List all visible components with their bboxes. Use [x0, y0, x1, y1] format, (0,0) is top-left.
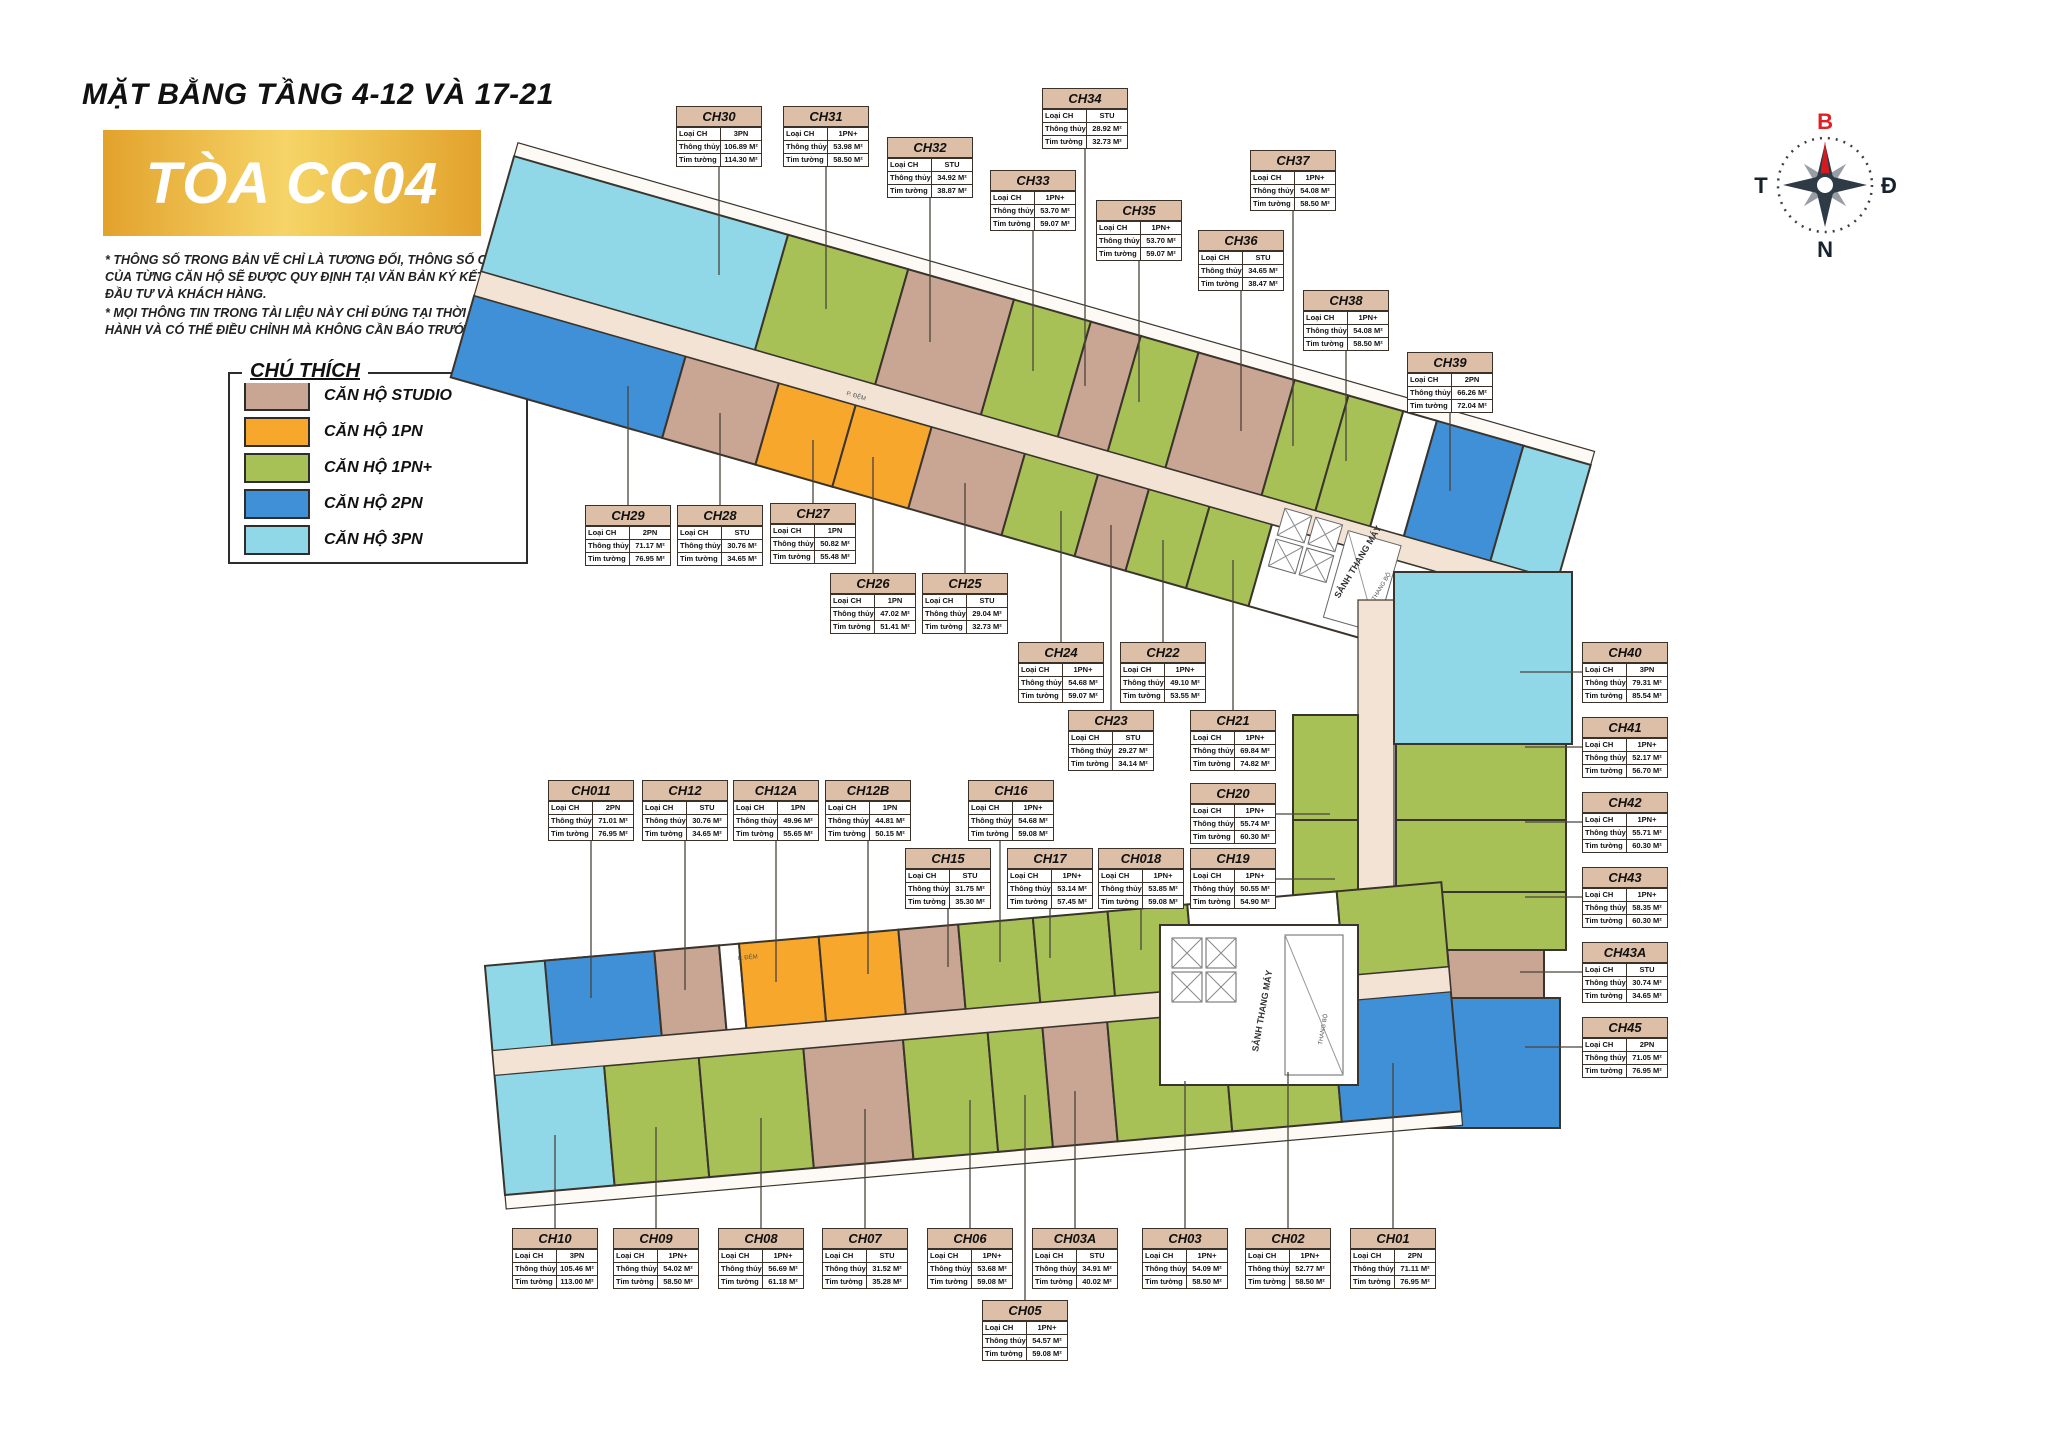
field-label: Thông thủy [1191, 745, 1235, 757]
unit-net-area-row: Thông thủy50.55 M² [1191, 882, 1275, 895]
unit-net-area: 79.31 M² [1627, 677, 1667, 689]
unit-gross-area-row: Tim tường34.65 M² [678, 552, 762, 565]
unit-type-row: Loại CHSTU [643, 801, 727, 814]
unit-gross-area-row: Tim tường32.73 M² [923, 620, 1007, 633]
unit-net-area-row: Thông thủy34.92 M² [888, 171, 972, 184]
unit-net-area: 49.10 M² [1165, 677, 1205, 689]
unit-gross-area: 35.28 M² [867, 1276, 907, 1288]
field-label: Tim tường [614, 1276, 658, 1288]
unit-id: CH37 [1251, 151, 1335, 171]
unit-net-area: 30.76 M² [687, 815, 727, 827]
field-label: Tim tường [1191, 758, 1235, 770]
unit-type: 1PN+ [1235, 870, 1275, 882]
field-label: Loại CH [991, 192, 1035, 204]
unit-id: CH03A [1033, 1229, 1117, 1249]
unit-id: CH20 [1191, 784, 1275, 804]
unit-type: STU [687, 802, 727, 814]
unit-net-area: 58.35 M² [1627, 902, 1667, 914]
unit-gross-area-row: Tim tường59.07 M² [991, 217, 1075, 230]
field-label: Thông thủy [771, 538, 815, 550]
unit-id: CH17 [1008, 849, 1092, 869]
unit-gross-area-row: Tim tường60.30 M² [1191, 830, 1275, 843]
unit-gross-area: 113.00 M² [557, 1276, 597, 1288]
unit-label-CH24: CH24Loại CH1PN+Thông thủy54.68 M²Tim tườ… [1018, 642, 1104, 703]
unit-id: CH10 [513, 1229, 597, 1249]
field-label: Thông thủy [1097, 235, 1141, 247]
unit-label-CH33: CH33Loại CH1PN+Thông thủy53.70 M²Tim tườ… [990, 170, 1076, 231]
unit-type: 1PN+ [1627, 889, 1667, 901]
floorplan-page: MẶT BẰNG TẦNG 4-12 VÀ 17-21 TÒA CC04 * T… [0, 0, 2048, 1448]
unit-label-CH23: CH23Loại CHSTUThông thủy29.27 M²Tim tườn… [1068, 710, 1154, 771]
unit-gross-area-row: Tim tường38.47 M² [1199, 277, 1283, 290]
unit-gross-area: 59.07 M² [1063, 690, 1103, 702]
unit-id: CH25 [923, 574, 1007, 594]
unit-gross-area: 76.95 M² [1395, 1276, 1435, 1288]
field-label: Thông thủy [1099, 883, 1143, 895]
unit-net-area: 71.17 M² [630, 540, 670, 552]
unit-gross-area-row: Tim tường32.73 M² [1043, 135, 1127, 148]
unit-net-area-row: Thông thủy79.31 M² [1583, 676, 1667, 689]
field-label: Tim tường [1191, 896, 1235, 908]
unit-label-CH28: CH28Loại CHSTUThông thủy30.76 M²Tim tườn… [677, 505, 763, 566]
unit-gross-area: 74.82 M² [1235, 758, 1275, 770]
unit-gross-area: 59.08 M² [972, 1276, 1012, 1288]
unit-type: 1PN+ [1165, 664, 1205, 676]
unit-net-area-row: Thông thủy69.84 M² [1191, 744, 1275, 757]
field-label: Tim tường [734, 828, 778, 840]
unit-net-area: 49.96 M² [778, 815, 818, 827]
unit-id: CH42 [1583, 793, 1667, 813]
unit-label-CH16: CH16Loại CH1PN+Thông thủy54.68 M²Tim tườ… [968, 780, 1054, 841]
unit-net-area: 29.04 M² [967, 608, 1007, 620]
unit-net-area: 54.02 M² [658, 1263, 698, 1275]
unit-net-area-row: Thông thủy71.17 M² [586, 539, 670, 552]
unit-label-CH05: CH05Loại CH1PN+Thông thủy54.57 M²Tim tườ… [982, 1300, 1068, 1361]
unit-type-row: Loại CH1PN+ [784, 127, 868, 140]
unit-net-area-row: Thông thủy30.76 M² [643, 814, 727, 827]
unit-type: 3PN [721, 128, 761, 140]
unit-id: CH19 [1191, 849, 1275, 869]
unit-type: 1PN [815, 525, 855, 537]
unit-gross-area: 54.90 M² [1235, 896, 1275, 908]
field-label: Tim tường [1583, 1065, 1627, 1077]
unit-label-CH40: CH40Loại CH3PNThông thủy79.31 M²Tim tườn… [1582, 642, 1668, 703]
unit-type-row: Loại CHSTU [906, 869, 990, 882]
field-label: Tim tường [1246, 1276, 1290, 1288]
field-label: Tim tường [969, 828, 1013, 840]
unit-net-area-row: Thông thủy29.04 M² [923, 607, 1007, 620]
unit-net-area: 71.11 M² [1395, 1263, 1435, 1275]
unit-gross-area-row: Tim tường59.08 M² [969, 827, 1053, 840]
unit-type-row: Loại CH1PN+ [1143, 1249, 1227, 1262]
unit-label-CH36: CH36Loại CHSTUThông thủy34.65 M²Tim tườn… [1198, 230, 1284, 291]
field-label: Loại CH [888, 159, 932, 171]
unit-type: STU [967, 595, 1007, 607]
field-label: Loại CH [1408, 374, 1452, 386]
unit-label-CH10: CH10Loại CH3PNThông thủy105.46 M²Tim tườ… [512, 1228, 598, 1289]
unit-gross-area: 85.54 M² [1627, 690, 1667, 702]
unit-type-row: Loại CHSTU [888, 158, 972, 171]
field-label: Tim tường [1008, 896, 1052, 908]
unit-type: 1PN+ [1143, 870, 1183, 882]
unit-type: 1PN+ [1627, 739, 1667, 751]
unit-gross-area-row: Tim tường59.07 M² [1097, 247, 1181, 260]
field-label: Thông thủy [719, 1263, 763, 1275]
unit-net-area: 30.76 M² [722, 540, 762, 552]
field-label: Thông thủy [1043, 123, 1087, 135]
unit-gross-area-row: Tim tường76.95 M² [586, 552, 670, 565]
field-label: Loại CH [771, 525, 815, 537]
unit-net-area-row: Thông thủy49.10 M² [1121, 676, 1205, 689]
unit-net-area-row: Thông thủy53.14 M² [1008, 882, 1092, 895]
unit-gross-area-row: Tim tường58.50 M² [784, 153, 868, 166]
unit-gross-area-row: Tim tường72.04 M² [1408, 399, 1492, 412]
unit-type: 1PN+ [1027, 1322, 1067, 1334]
unit-net-area-row: Thông thủy53.98 M² [784, 140, 868, 153]
field-label: Loại CH [1097, 222, 1141, 234]
unit-type: STU [867, 1250, 907, 1262]
field-label: Tim tường [1583, 765, 1627, 777]
field-label: Tim tường [1033, 1276, 1077, 1288]
field-label: Tim tường [1251, 198, 1295, 210]
unit-id: CH23 [1069, 711, 1153, 731]
unit-net-area-row: Thông thủy52.17 M² [1583, 751, 1667, 764]
unit-label-CH32: CH32Loại CHSTUThông thủy34.92 M²Tim tườn… [887, 137, 973, 198]
field-label: Thông thủy [1191, 883, 1235, 895]
field-label: Thông thủy [1583, 902, 1627, 914]
unit-label-CH08: CH08Loại CH1PN+Thông thủy56.69 M²Tim tườ… [718, 1228, 804, 1289]
unit-net-area: 29.27 M² [1113, 745, 1153, 757]
field-label: Tim tường [677, 154, 721, 166]
unit-id: CH21 [1191, 711, 1275, 731]
unit-net-area-row: Thông thủy53.70 M² [991, 204, 1075, 217]
field-label: Thông thủy [1199, 265, 1243, 277]
unit-net-area: 71.05 M² [1627, 1052, 1667, 1064]
field-label: Loại CH [923, 595, 967, 607]
unit-id: CH31 [784, 107, 868, 127]
unit-id: CH15 [906, 849, 990, 869]
unit-id: CH43 [1583, 868, 1667, 888]
field-label: Loại CH [928, 1250, 972, 1262]
unit-net-area: 28.92 M² [1087, 123, 1127, 135]
field-label: Loại CH [719, 1250, 763, 1262]
unit-net-area-row: Thông thủy31.52 M² [823, 1262, 907, 1275]
unit-label-CH41: CH41Loại CH1PN+Thông thủy52.17 M²Tim tườ… [1582, 717, 1668, 778]
field-label: Tim tường [586, 553, 630, 565]
unit-net-area-row: Thông thủy54.02 M² [614, 1262, 698, 1275]
field-label: Tim tường [1583, 690, 1627, 702]
unit-net-area: 106.89 M² [721, 141, 761, 153]
unit-net-area: 30.74 M² [1627, 977, 1667, 989]
unit-type: STU [932, 159, 972, 171]
unit-type: 1PN+ [763, 1250, 803, 1262]
unit-net-area-row: Thông thủy105.46 M² [513, 1262, 597, 1275]
unit-type: STU [1243, 252, 1283, 264]
field-label: Tim tường [991, 218, 1035, 230]
unit-net-area: 56.69 M² [763, 1263, 803, 1275]
unit-id: CH05 [983, 1301, 1067, 1321]
unit-type-row: Loại CH1PN+ [1121, 663, 1205, 676]
field-label: Thông thủy [677, 141, 721, 153]
unit-type-row: Loại CH1PN+ [1583, 888, 1667, 901]
unit-type-row: Loại CH1PN+ [719, 1249, 803, 1262]
unit-gross-area-row: Tim tường50.15 M² [826, 827, 910, 840]
unit-id: CH018 [1099, 849, 1183, 869]
unit-type-row: Loại CH1PN [826, 801, 910, 814]
unit-id: CH26 [831, 574, 915, 594]
unit-gross-area-row: Tim tường57.45 M² [1008, 895, 1092, 908]
unit-net-area-row: Thông thủy54.57 M² [983, 1334, 1067, 1347]
unit-label-CH45: CH45Loại CH2PNThông thủy71.05 M²Tim tườn… [1582, 1017, 1668, 1078]
unit-gross-area-row: Tim tường59.08 M² [928, 1275, 1012, 1288]
unit-type-row: Loại CH1PN+ [1008, 869, 1092, 882]
unit-type-row: Loại CH1PN+ [1099, 869, 1183, 882]
field-label: Thông thủy [643, 815, 687, 827]
unit-type-row: Loại CH2PN [549, 801, 633, 814]
field-label: Loại CH [1191, 870, 1235, 882]
field-label: Thông thủy [1408, 387, 1452, 399]
unit-label-CH29: CH29Loại CH2PNThông thủy71.17 M²Tim tườn… [585, 505, 671, 566]
unit-gross-area: 76.95 M² [593, 828, 633, 840]
unit-type: 2PN [593, 802, 633, 814]
field-label: Thông thủy [784, 141, 828, 153]
unit-type: 1PN+ [1295, 172, 1335, 184]
unit-type: STU [1113, 732, 1153, 744]
unit-net-area-row: Thông thủy34.65 M² [1199, 264, 1283, 277]
unit-net-area: 71.01 M² [593, 815, 633, 827]
unit-label-CH20: CH20Loại CH1PN+Thông thủy55.74 M²Tim tườ… [1190, 783, 1276, 844]
unit-gross-area: 34.65 M² [722, 553, 762, 565]
unit-gross-area-row: Tim tường34.14 M² [1069, 757, 1153, 770]
field-label: Loại CH [1583, 739, 1627, 751]
field-label: Loại CH [983, 1322, 1027, 1334]
unit-gross-area: 53.55 M² [1165, 690, 1205, 702]
field-label: Loại CH [643, 802, 687, 814]
unit-gross-area: 76.95 M² [1627, 1065, 1667, 1077]
field-label: Tim tường [678, 553, 722, 565]
unit-gross-area-row: Tim tường85.54 M² [1583, 689, 1667, 702]
unit-gross-area: 38.87 M² [932, 185, 972, 197]
unit-type: 1PN+ [1187, 1250, 1227, 1262]
unit-id: CH30 [677, 107, 761, 127]
unit-type-row: Loại CH1PN+ [614, 1249, 698, 1262]
unit-label-CH39: CH39Loại CH2PNThông thủy66.26 M²Tim tườn… [1407, 352, 1493, 413]
unit-label-CH07: CH07Loại CHSTUThông thủy31.52 M²Tim tườn… [822, 1228, 908, 1289]
field-label: Tim tường [923, 621, 967, 633]
unit-type-row: Loại CHSTU [1069, 731, 1153, 744]
field-label: Loại CH [1191, 732, 1235, 744]
unit-type: 2PN [630, 527, 670, 539]
field-label: Loại CH [1008, 870, 1052, 882]
unit-net-area: 55.74 M² [1235, 818, 1275, 830]
unit-gross-area: 59.07 M² [1035, 218, 1075, 230]
field-label: Tim tường [1583, 915, 1627, 927]
unit-gross-area-row: Tim tường59.08 M² [1099, 895, 1183, 908]
unit-type: 1PN+ [1348, 312, 1388, 324]
field-label: Loại CH [734, 802, 778, 814]
unit-type-row: Loại CH1PN+ [1251, 171, 1335, 184]
unit-id: CH29 [586, 506, 670, 526]
field-label: Tim tường [1019, 690, 1063, 702]
unit-net-area-row: Thông thủy71.05 M² [1583, 1051, 1667, 1064]
unit-gross-area-row: Tim tường59.08 M² [983, 1347, 1067, 1360]
unit-gross-area: 58.50 M² [1348, 338, 1388, 350]
unit-label-CH25: CH25Loại CHSTUThông thủy29.04 M²Tim tườn… [922, 573, 1008, 634]
unit-id: CH02 [1246, 1229, 1330, 1249]
field-label: Tim tường [643, 828, 687, 840]
field-label: Loại CH [1251, 172, 1295, 184]
unit-gross-area: 57.45 M² [1052, 896, 1092, 908]
field-label: Loại CH [1121, 664, 1165, 676]
field-label: Loại CH [1583, 664, 1627, 676]
unit-type-row: Loại CHSTU [823, 1249, 907, 1262]
field-label: Thông thủy [1121, 677, 1165, 689]
unit-gross-area: 32.73 M² [967, 621, 1007, 633]
unit-net-area-row: Thông thủy66.26 M² [1408, 386, 1492, 399]
unit-type: 1PN+ [1052, 870, 1092, 882]
unit-label-CH09: CH09Loại CH1PN+Thông thủy54.02 M²Tim tườ… [613, 1228, 699, 1289]
unit-label-CH43: CH43Loại CH1PN+Thông thủy58.35 M²Tim tườ… [1582, 867, 1668, 928]
unit-gross-area-row: Tim tường58.50 M² [1246, 1275, 1330, 1288]
unit-type-row: Loại CH1PN+ [991, 191, 1075, 204]
unit-net-area: 53.85 M² [1143, 883, 1183, 895]
unit-net-area: 47.02 M² [875, 608, 915, 620]
field-label: Tim tường [906, 896, 950, 908]
unit-id: CH011 [549, 781, 633, 801]
field-label: Tim tường [1099, 896, 1143, 908]
unit-type-row: Loại CH1PN+ [928, 1249, 1012, 1262]
field-label: Thông thủy [1583, 677, 1627, 689]
unit-id: CH01 [1351, 1229, 1435, 1249]
unit-net-area-row: Thông thủy53.68 M² [928, 1262, 1012, 1275]
unit-net-area-row: Thông thủy44.81 M² [826, 814, 910, 827]
unit-label-CH27: CH27Loại CH1PNThông thủy50.82 M²Tim tườn… [770, 503, 856, 564]
unit-type-row: Loại CH1PN+ [1583, 813, 1667, 826]
field-label: Tim tường [826, 828, 870, 840]
field-label: Loại CH [1019, 664, 1063, 676]
field-label: Thông thủy [678, 540, 722, 552]
unit-net-area: 53.70 M² [1141, 235, 1181, 247]
unit-type-row: Loại CH1PN+ [969, 801, 1053, 814]
unit-net-area-row: Thông thủy50.82 M² [771, 537, 855, 550]
unit-type: 1PN [778, 802, 818, 814]
field-label: Thông thủy [1583, 1052, 1627, 1064]
unit-net-area-row: Thông thủy47.02 M² [831, 607, 915, 620]
field-label: Loại CH [1583, 964, 1627, 976]
unit-net-area-row: Thông thủy71.11 M² [1351, 1262, 1435, 1275]
unit-id: CH33 [991, 171, 1075, 191]
unit-label-CH38: CH38Loại CH1PN+Thông thủy54.08 M²Tim tườ… [1303, 290, 1389, 351]
unit-type-row: Loại CH1PN+ [1097, 221, 1181, 234]
unit-type: 1PN+ [1035, 192, 1075, 204]
unit-label-CH03A: CH03ALoại CHSTUThông thủy34.91 M²Tim tườ… [1032, 1228, 1118, 1289]
field-label: Thông thủy [1583, 977, 1627, 989]
unit-gross-area-row: Tim tường55.48 M² [771, 550, 855, 563]
unit-label-CH17: CH17Loại CH1PN+Thông thủy53.14 M²Tim tườ… [1007, 848, 1093, 909]
unit-id: CH27 [771, 504, 855, 524]
unit-net-area-row: Thông thủy54.08 M² [1251, 184, 1335, 197]
unit-gross-area: 114.30 M² [721, 154, 761, 166]
unit-net-area: 52.17 M² [1627, 752, 1667, 764]
unit-id: CH12B [826, 781, 910, 801]
unit-type: 3PN [557, 1250, 597, 1262]
field-label: Loại CH [906, 870, 950, 882]
unit-label-CH42: CH42Loại CH1PN+Thông thủy55.71 M²Tim tườ… [1582, 792, 1668, 853]
field-label: Loại CH [677, 128, 721, 140]
unit-gross-area-row: Tim tường58.50 M² [1251, 197, 1335, 210]
field-label: Loại CH [678, 527, 722, 539]
unit-net-area: 66.26 M² [1452, 387, 1492, 399]
field-label: Thông thủy [1033, 1263, 1077, 1275]
unit-gross-area: 76.95 M² [630, 553, 670, 565]
field-label: Thông thủy [1069, 745, 1113, 757]
field-label: Thông thủy [906, 883, 950, 895]
unit-type: 2PN [1627, 1039, 1667, 1051]
unit-gross-area-row: Tim tường35.28 M² [823, 1275, 907, 1288]
field-label: Thông thủy [1008, 883, 1052, 895]
unit-type-row: Loại CH3PN [677, 127, 761, 140]
compass-icon: B Đ N T [1740, 95, 1970, 305]
unit-gross-area-row: Tim tường56.70 M² [1583, 764, 1667, 777]
unit-gross-area-row: Tim tường76.95 M² [1351, 1275, 1435, 1288]
unit-gross-area-row: Tim tường59.07 M² [1019, 689, 1103, 702]
field-label: Loại CH [1199, 252, 1243, 264]
unit-type: 1PN+ [1235, 805, 1275, 817]
unit-net-area: 54.08 M² [1348, 325, 1388, 337]
unit-gross-area-row: Tim tường76.95 M² [549, 827, 633, 840]
field-label: Tim tường [719, 1276, 763, 1288]
unit-net-area-row: Thông thủy53.70 M² [1097, 234, 1181, 247]
unit-gross-area: 34.65 M² [687, 828, 727, 840]
unit-type: 3PN [1627, 664, 1667, 676]
unit-label-CH30: CH30Loại CH3PNThông thủy106.89 M²Tim tườ… [676, 106, 762, 167]
unit-type: 1PN+ [828, 128, 868, 140]
field-label: Tim tường [1191, 831, 1235, 843]
unit-type-row: Loại CHSTU [1043, 109, 1127, 122]
unit-type: 1PN+ [1141, 222, 1181, 234]
field-label: Tim tường [1097, 248, 1141, 260]
unit-id: CH16 [969, 781, 1053, 801]
unit-type-row: Loại CHSTU [1033, 1249, 1117, 1262]
field-label: Loại CH [1583, 814, 1627, 826]
unit-type-row: Loại CH1PN+ [1246, 1249, 1330, 1262]
field-label: Loại CH [831, 595, 875, 607]
unit-gross-area-row: Tim tường40.02 M² [1033, 1275, 1117, 1288]
field-label: Loại CH [784, 128, 828, 140]
unit-label-CH06: CH06Loại CH1PN+Thông thủy53.68 M²Tim tườ… [927, 1228, 1013, 1289]
unit-gross-area-row: Tim tường60.30 M² [1583, 839, 1667, 852]
unit-gross-area: 34.14 M² [1113, 758, 1153, 770]
field-label: Loại CH [823, 1250, 867, 1262]
field-label: Tim tường [888, 185, 932, 197]
unit-net-area-row: Thông thủy55.71 M² [1583, 826, 1667, 839]
unit-gross-area: 58.50 M² [1187, 1276, 1227, 1288]
unit-gross-area-row: Tim tường54.90 M² [1191, 895, 1275, 908]
unit-net-area-row: Thông thủy29.27 M² [1069, 744, 1153, 757]
unit-type: 1PN+ [1013, 802, 1053, 814]
unit-type: STU [950, 870, 990, 882]
field-label: Loại CH [1351, 1250, 1395, 1262]
field-label: Tim tường [784, 154, 828, 166]
field-label: Thông thủy [928, 1263, 972, 1275]
field-label: Thông thủy [923, 608, 967, 620]
unit-id: CH22 [1121, 643, 1205, 663]
field-label: Thông thủy [831, 608, 875, 620]
field-label: Tim tường [823, 1276, 867, 1288]
unit-gross-area-row: Tim tường58.50 M² [614, 1275, 698, 1288]
unit-gross-area-row: Tim tường60.30 M² [1583, 914, 1667, 927]
unit-id: CH40 [1583, 643, 1667, 663]
